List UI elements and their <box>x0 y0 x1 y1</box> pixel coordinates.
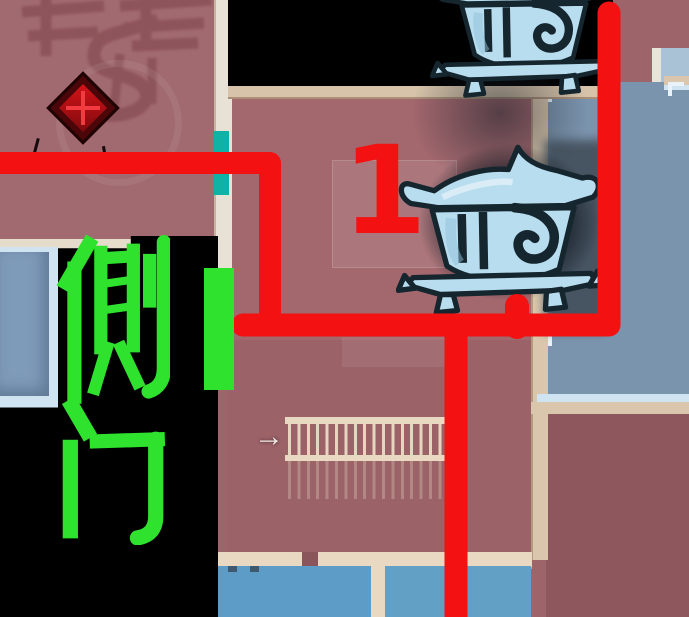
route-number-label: 1 <box>342 130 427 252</box>
side-door-marker <box>204 268 234 390</box>
game-map: 条赛 → 1 <box>0 0 689 617</box>
side-door-label-glyphs <box>52 234 170 545</box>
